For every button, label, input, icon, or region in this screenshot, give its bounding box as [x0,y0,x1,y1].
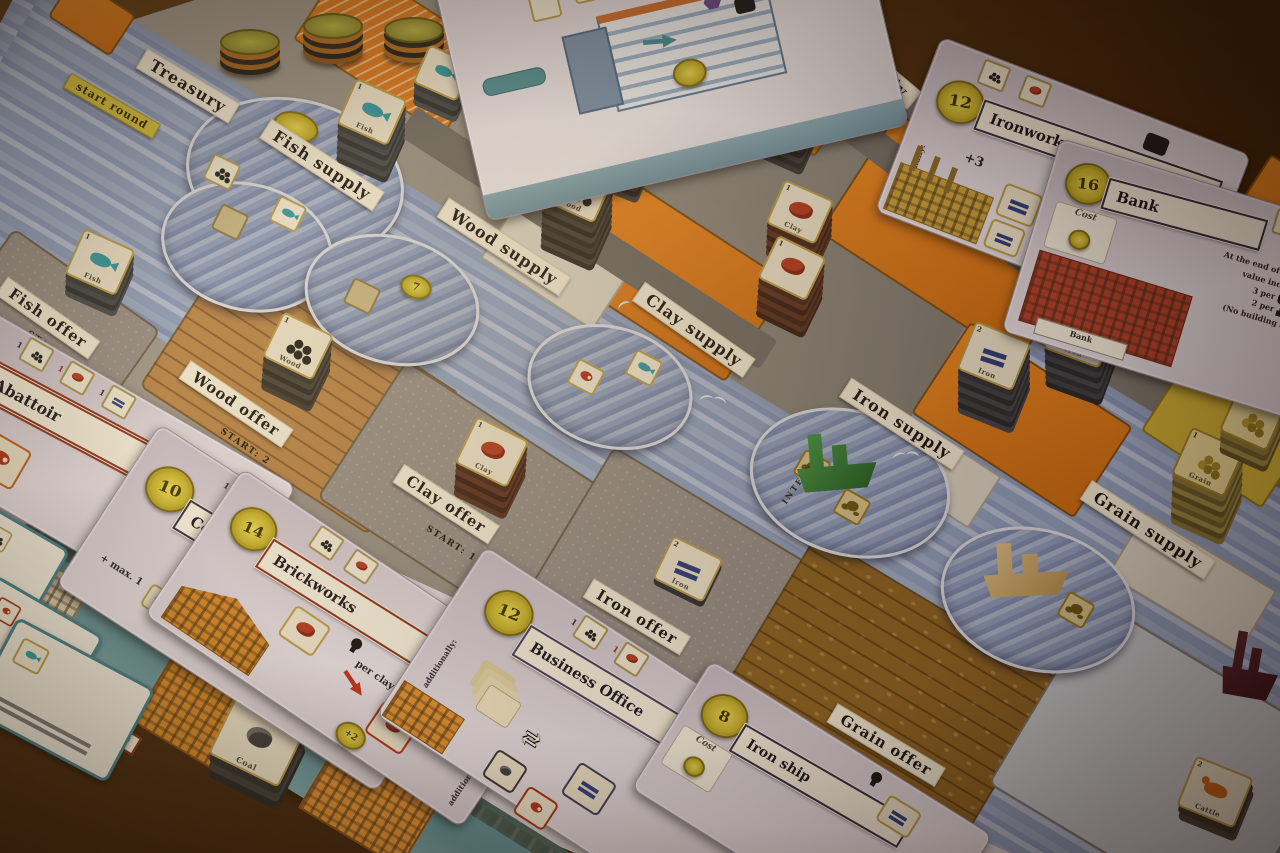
coin-value: 8 [716,706,733,726]
clay-icon [71,371,85,384]
token-value: 1 [356,81,364,91]
deck-teal-capsule [481,66,547,98]
clay-icon [787,198,815,222]
clay-cost-tile [1271,208,1280,241]
card-stack-icon [474,683,522,729]
fish-icon [25,649,39,661]
clay-icon [294,619,317,640]
iron-icon [996,232,1013,241]
token-value: 2 [1196,759,1204,769]
fish-icon [360,100,385,120]
token-value: 1 [777,238,785,248]
cost-coin [1066,227,1093,253]
clay-icon [479,437,508,462]
wood-icon [992,72,997,77]
cattle-icon [1202,779,1229,800]
lamp-icon [349,636,364,651]
coin-value: 7 [411,281,421,294]
token-value: 1 [1191,430,1199,440]
coal-icon [243,723,275,752]
card-title: Abattoir [0,374,65,425]
resource-icon [845,499,860,514]
grain-icon [1247,412,1259,424]
coin-value: 10 [155,476,184,502]
clay-icon [1028,84,1042,96]
iron-icon [113,397,125,405]
fish-icon [88,250,113,270]
coin-stack [220,29,280,55]
wood-icon [34,351,40,357]
ironworks-plus: +3 [962,150,986,171]
coin-value: 16 [1076,174,1100,194]
meat-icon [579,369,594,383]
wood-icon [588,629,594,635]
token-value: 2 [976,324,984,334]
fish-icon [281,207,296,219]
card-title: Bank [1114,188,1162,217]
resource-icon [1069,602,1084,617]
seagull-mark [893,451,920,463]
token-value: 1 [84,231,92,241]
token-value: 1 [784,183,792,193]
clay-icon [779,254,808,279]
coin-value: 14 [240,517,267,542]
ship-card-tile [11,637,51,676]
meat-icon [1,606,12,616]
iron-trade-tile [560,761,618,817]
bank-cost [1271,208,1280,252]
wood-icon [293,338,305,350]
coin-stack [384,17,444,43]
board-game-photo: 10 7 INTEREST start round Treasury Fish … [0,0,1280,853]
iron-icon [983,348,1007,360]
swap-arrows-icon: ⇄ [518,724,545,753]
coin-value: 12 [947,91,974,113]
deck-mini-tile [527,0,563,23]
wood-icon [324,539,330,545]
lamp-icon [869,770,884,785]
token-value: 1 [283,315,291,325]
coin-value: +2 [342,728,359,744]
iron-icon [1010,199,1029,210]
deck-building-art [596,0,788,112]
clay-input-tile [277,604,332,657]
clay-icon [354,559,368,572]
wood-cost-tile [976,58,1011,92]
fish-icon [434,63,454,79]
deck-mini-tile [570,0,606,5]
token-value: 2 [672,539,680,549]
grain-icon [1203,454,1215,466]
ship-card-text-lines [0,700,88,755]
cost-coin [679,752,708,781]
wood-icon [219,167,226,174]
fish-icon [637,361,652,374]
card-title: Iron ship [743,737,813,786]
ship-card-tile [0,522,13,553]
iron-icon [581,781,599,795]
iron-icon [677,560,701,574]
coal-trade-tile [481,748,529,794]
hammer-icon [1142,132,1171,157]
iron-icon [891,810,907,822]
coin-value: 12 [494,600,523,626]
meat-icon [0,448,12,468]
coin-stack [303,13,363,39]
clay-cost-tile [1017,74,1052,108]
coal-icon [498,763,513,777]
additionally-note: additionally: [420,637,459,690]
meat-icon [529,800,545,814]
token-value: 1 [476,419,484,429]
colliery-max-line: + max. 1 [98,553,145,589]
clay-icon [625,652,639,665]
meat-token [0,428,33,491]
